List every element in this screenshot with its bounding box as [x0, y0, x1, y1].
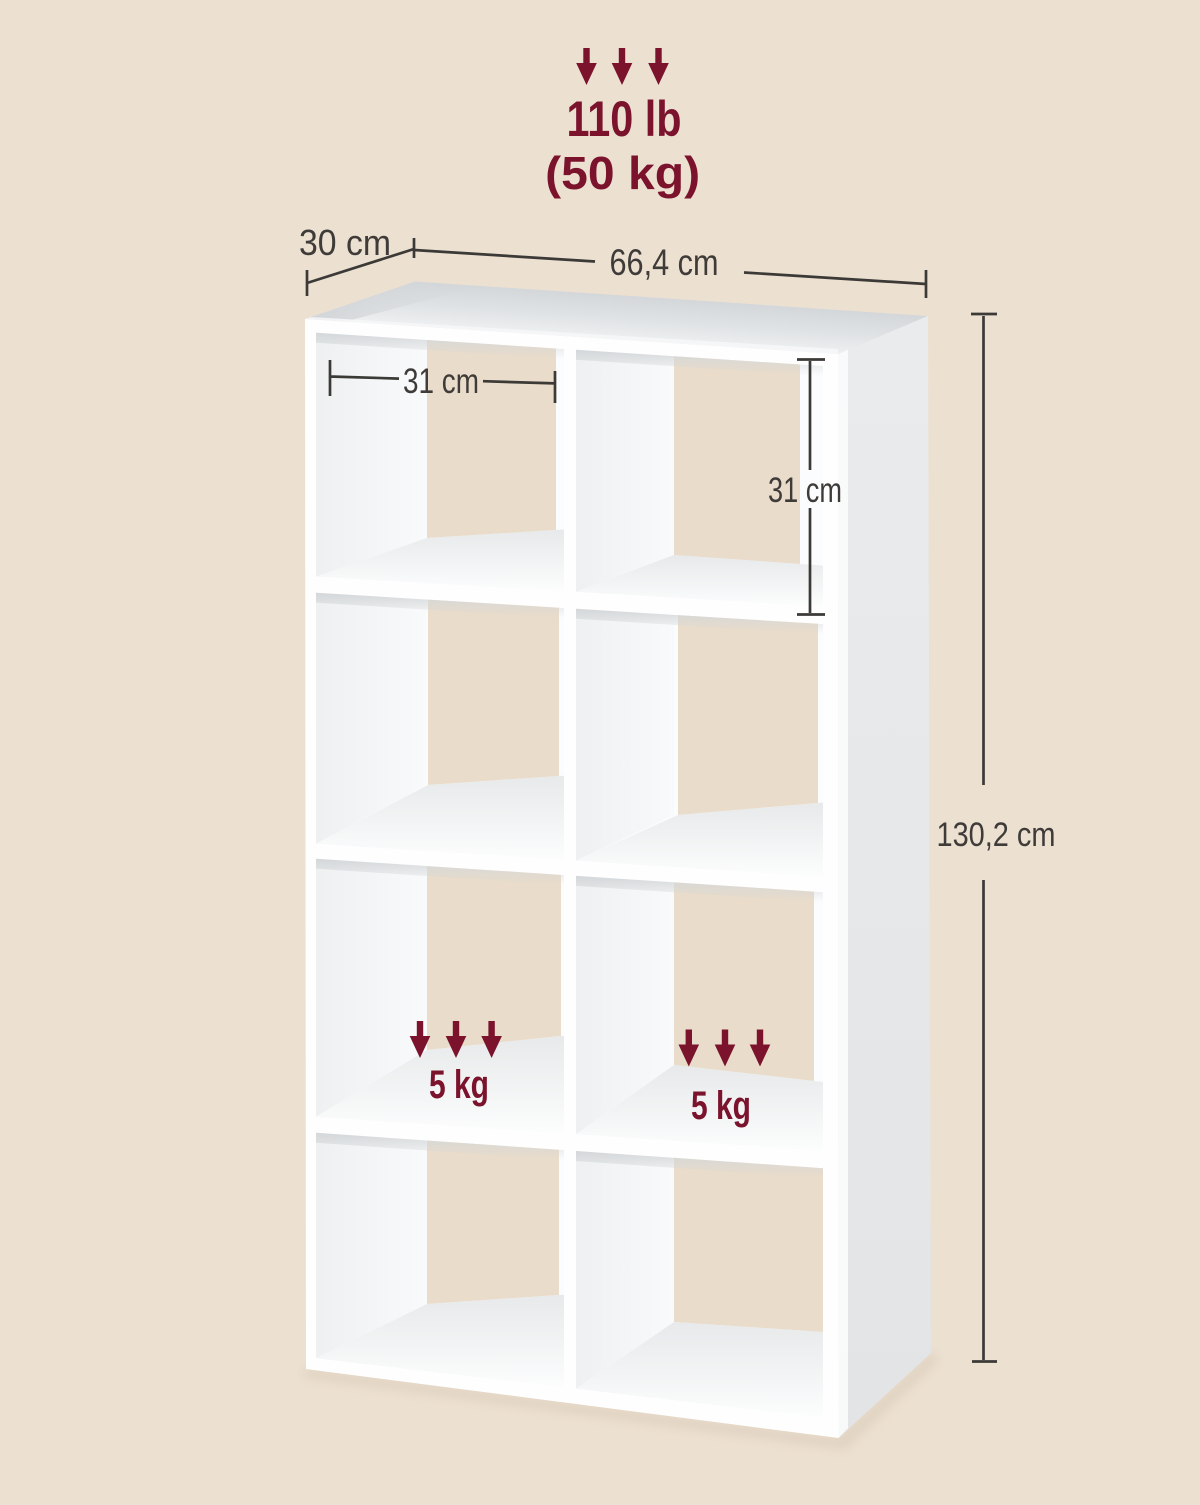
svg-text:(50 kg): (50 kg) — [545, 147, 700, 199]
svg-text:5 kg: 5 kg — [691, 1084, 751, 1128]
svg-text:30 cm: 30 cm — [299, 222, 391, 263]
svg-text:31 cm: 31 cm — [403, 362, 479, 401]
svg-text:130,2 cm: 130,2 cm — [937, 816, 1056, 854]
svg-text:66,4 cm: 66,4 cm — [610, 242, 719, 283]
svg-text:5 kg: 5 kg — [429, 1063, 489, 1107]
svg-text:110 lb: 110 lb — [567, 91, 682, 147]
svg-text:31 cm: 31 cm — [768, 471, 842, 510]
